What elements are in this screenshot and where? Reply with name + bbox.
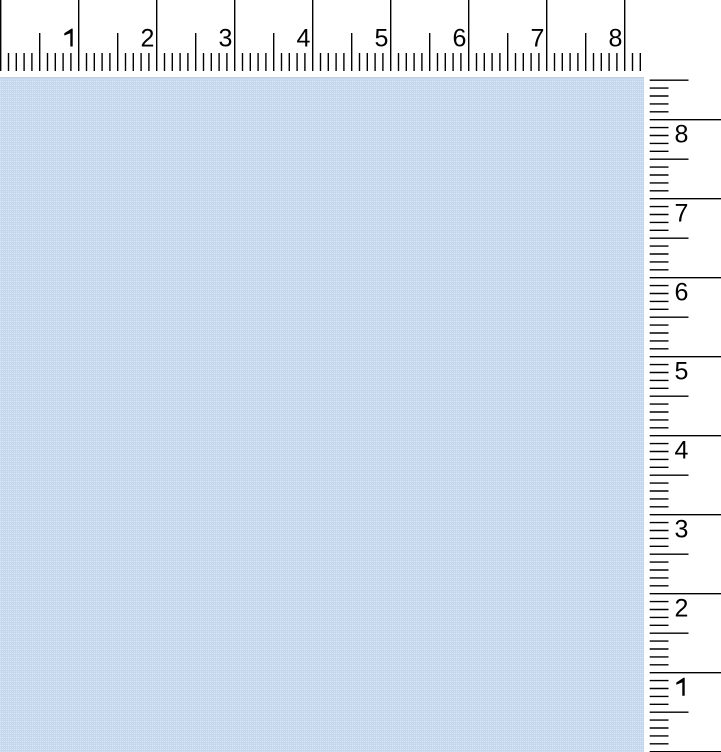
svg-text:5: 5 xyxy=(675,358,689,386)
svg-text:3: 3 xyxy=(675,516,689,544)
svg-text:4: 4 xyxy=(296,25,310,53)
svg-text:4: 4 xyxy=(675,437,689,465)
svg-text:6: 6 xyxy=(675,279,689,307)
svg-text:5: 5 xyxy=(374,25,388,53)
svg-text:8: 8 xyxy=(608,25,622,53)
svg-text:2: 2 xyxy=(675,595,689,623)
svg-text:3: 3 xyxy=(218,25,232,53)
svg-text:2: 2 xyxy=(140,25,154,53)
svg-text:7: 7 xyxy=(675,200,689,228)
svg-text:8: 8 xyxy=(675,121,689,149)
svg-text:7: 7 xyxy=(530,25,544,53)
svg-text:6: 6 xyxy=(452,25,466,53)
